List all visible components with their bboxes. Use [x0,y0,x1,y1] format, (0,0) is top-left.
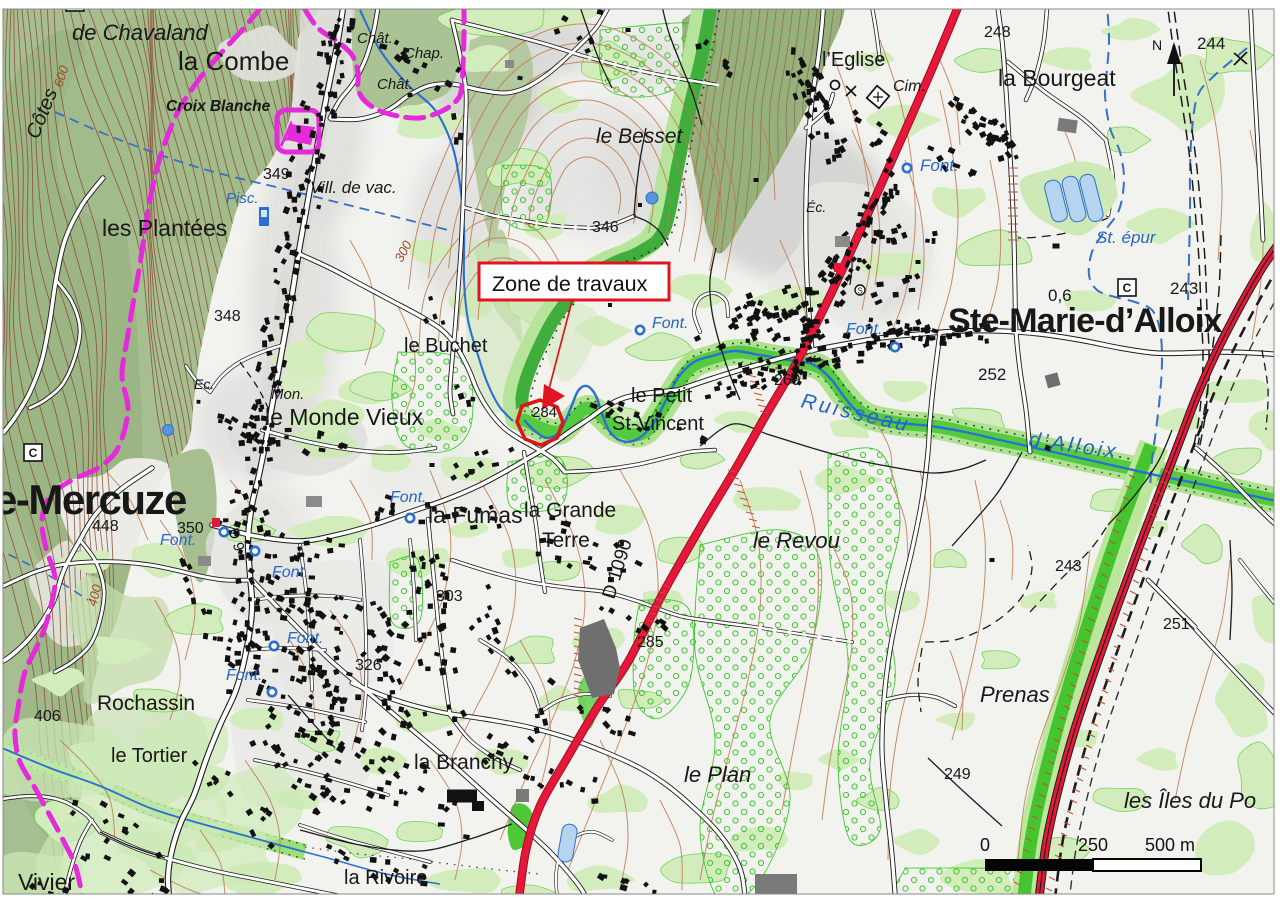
svg-text:406: 406 [34,708,61,725]
svg-text:Font.: Font. [920,156,959,175]
svg-text:346: 346 [592,219,619,236]
svg-text:269: 269 [774,372,801,389]
svg-text:C: C [29,446,38,460]
svg-text:Prenas: Prenas [980,682,1050,707]
svg-text:Chât.: Chât. [357,30,393,47]
svg-text:0,6: 0,6 [1048,286,1072,305]
svg-text:la Combe: la Combe [178,46,289,76]
svg-text:303: 303 [436,588,463,605]
svg-text:Font.: Font. [846,321,882,338]
svg-text:la Bourgeat: la Bourgeat [998,65,1116,91]
svg-text:St. épur: St. épur [1096,228,1157,247]
svg-text:0: 0 [980,835,990,855]
svg-text:Font.: Font. [226,667,262,684]
svg-text:244: 244 [1197,34,1225,53]
svg-text:243: 243 [1055,558,1082,575]
svg-text:Zone de travaux: Zone de travaux [492,272,648,296]
svg-text:Chât.: Chât. [377,76,413,93]
svg-text:Terre: Terre [542,529,590,552]
svg-text:Vill. de vac.: Vill. de vac. [310,178,397,197]
svg-text:348: 348 [214,308,241,325]
svg-text:l’Eglise: l’Eglise [822,49,885,71]
svg-text:le Revou: le Revou [753,528,840,553]
svg-text:250: 250 [1078,835,1108,855]
svg-text:le Monde Vieux: le Monde Vieux [265,404,424,430]
svg-text:Rochassin: Rochassin [97,692,195,715]
svg-text:St-Vincent: St-Vincent [612,413,704,435]
svg-text:de Chavaland: de Chavaland [72,20,209,45]
svg-text:C: C [1123,281,1132,295]
svg-text:243: 243 [1170,279,1198,298]
svg-text:la Rivoire: la Rivoire [344,867,427,889]
svg-text:Ec.: Ec. [194,376,214,392]
svg-text:349: 349 [263,166,290,183]
svg-text:Croix Blanche: Croix Blanche [166,98,271,115]
svg-text:Vivier: Vivier [18,869,75,895]
svg-text:285: 285 [637,634,664,651]
svg-text:le Tortier: le Tortier [111,745,188,767]
svg-text:248: 248 [984,24,1011,41]
svg-text:la Fumas: la Fumas [428,502,523,528]
svg-text:Éc.: Éc. [806,199,826,215]
svg-text:le Buchet: le Buchet [404,335,488,357]
svg-text:Font.: Font. [287,630,323,647]
svg-text:Cim.: Cim. [893,78,926,95]
svg-text:500 m: 500 m [1145,835,1195,855]
svg-text:le Besset: le Besset [596,125,684,148]
svg-text:le Petit: le Petit [631,385,693,407]
svg-text:249: 249 [944,766,971,783]
svg-text:284: 284 [532,404,557,421]
svg-text:326: 326 [355,657,382,674]
svg-text:les Îles du Po: les Îles du Po [1124,788,1256,813]
svg-text:Ste-Marie-d’Alloix: Ste-Marie-d’Alloix [948,302,1222,340]
svg-text:la Grande: la Grande [524,499,616,522]
svg-text:448: 448 [92,518,119,535]
svg-text:252: 252 [978,365,1006,384]
svg-text:N: N [1152,37,1162,53]
svg-text:Chap.: Chap. [404,45,444,62]
svg-text:251: 251 [1163,616,1190,633]
svg-text:Font.: Font. [390,489,426,506]
svg-text:S: S [857,287,862,296]
svg-text:le Plan: le Plan [684,762,751,787]
svg-text:Pisc.: Pisc. [226,190,259,207]
svg-text:la Branchy: la Branchy [414,751,514,774]
svg-text:e-Mercuze: e-Mercuze [0,476,186,523]
svg-text:Font.: Font. [160,532,196,549]
svg-text:les Plantées: les Plantées [102,215,227,241]
svg-text:Mon.: Mon. [271,386,304,403]
svg-text:Font.: Font. [652,315,688,332]
svg-text:Font.: Font. [272,564,308,581]
